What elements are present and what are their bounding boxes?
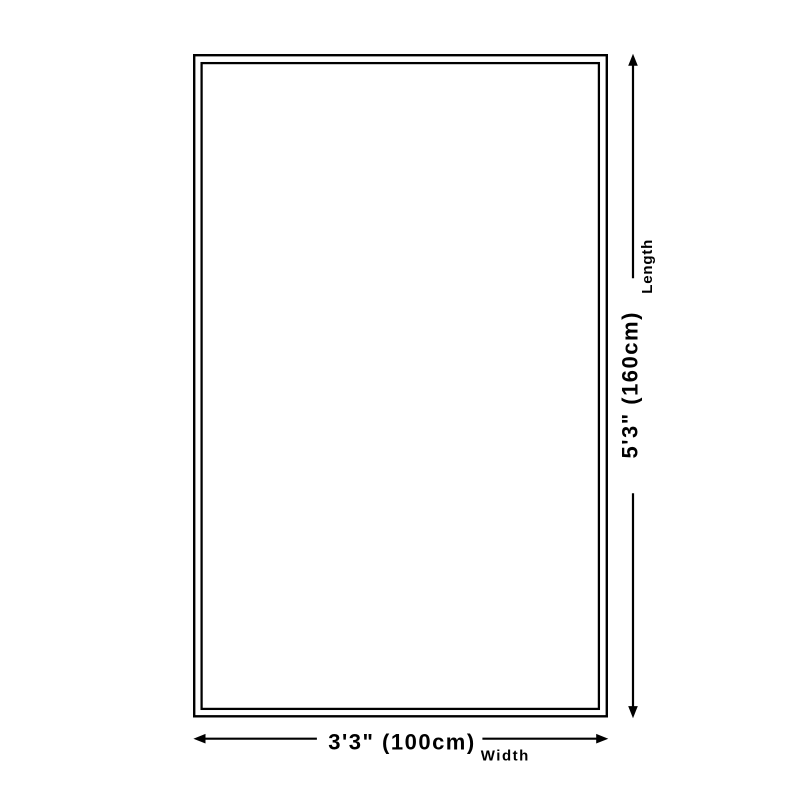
- svg-text:Width: Width: [481, 748, 530, 765]
- svg-text:Length: Length: [639, 239, 656, 294]
- svg-text:3'3" (100cm): 3'3" (100cm): [328, 730, 475, 755]
- svg-text:5'3" (160cm): 5'3" (160cm): [617, 311, 642, 458]
